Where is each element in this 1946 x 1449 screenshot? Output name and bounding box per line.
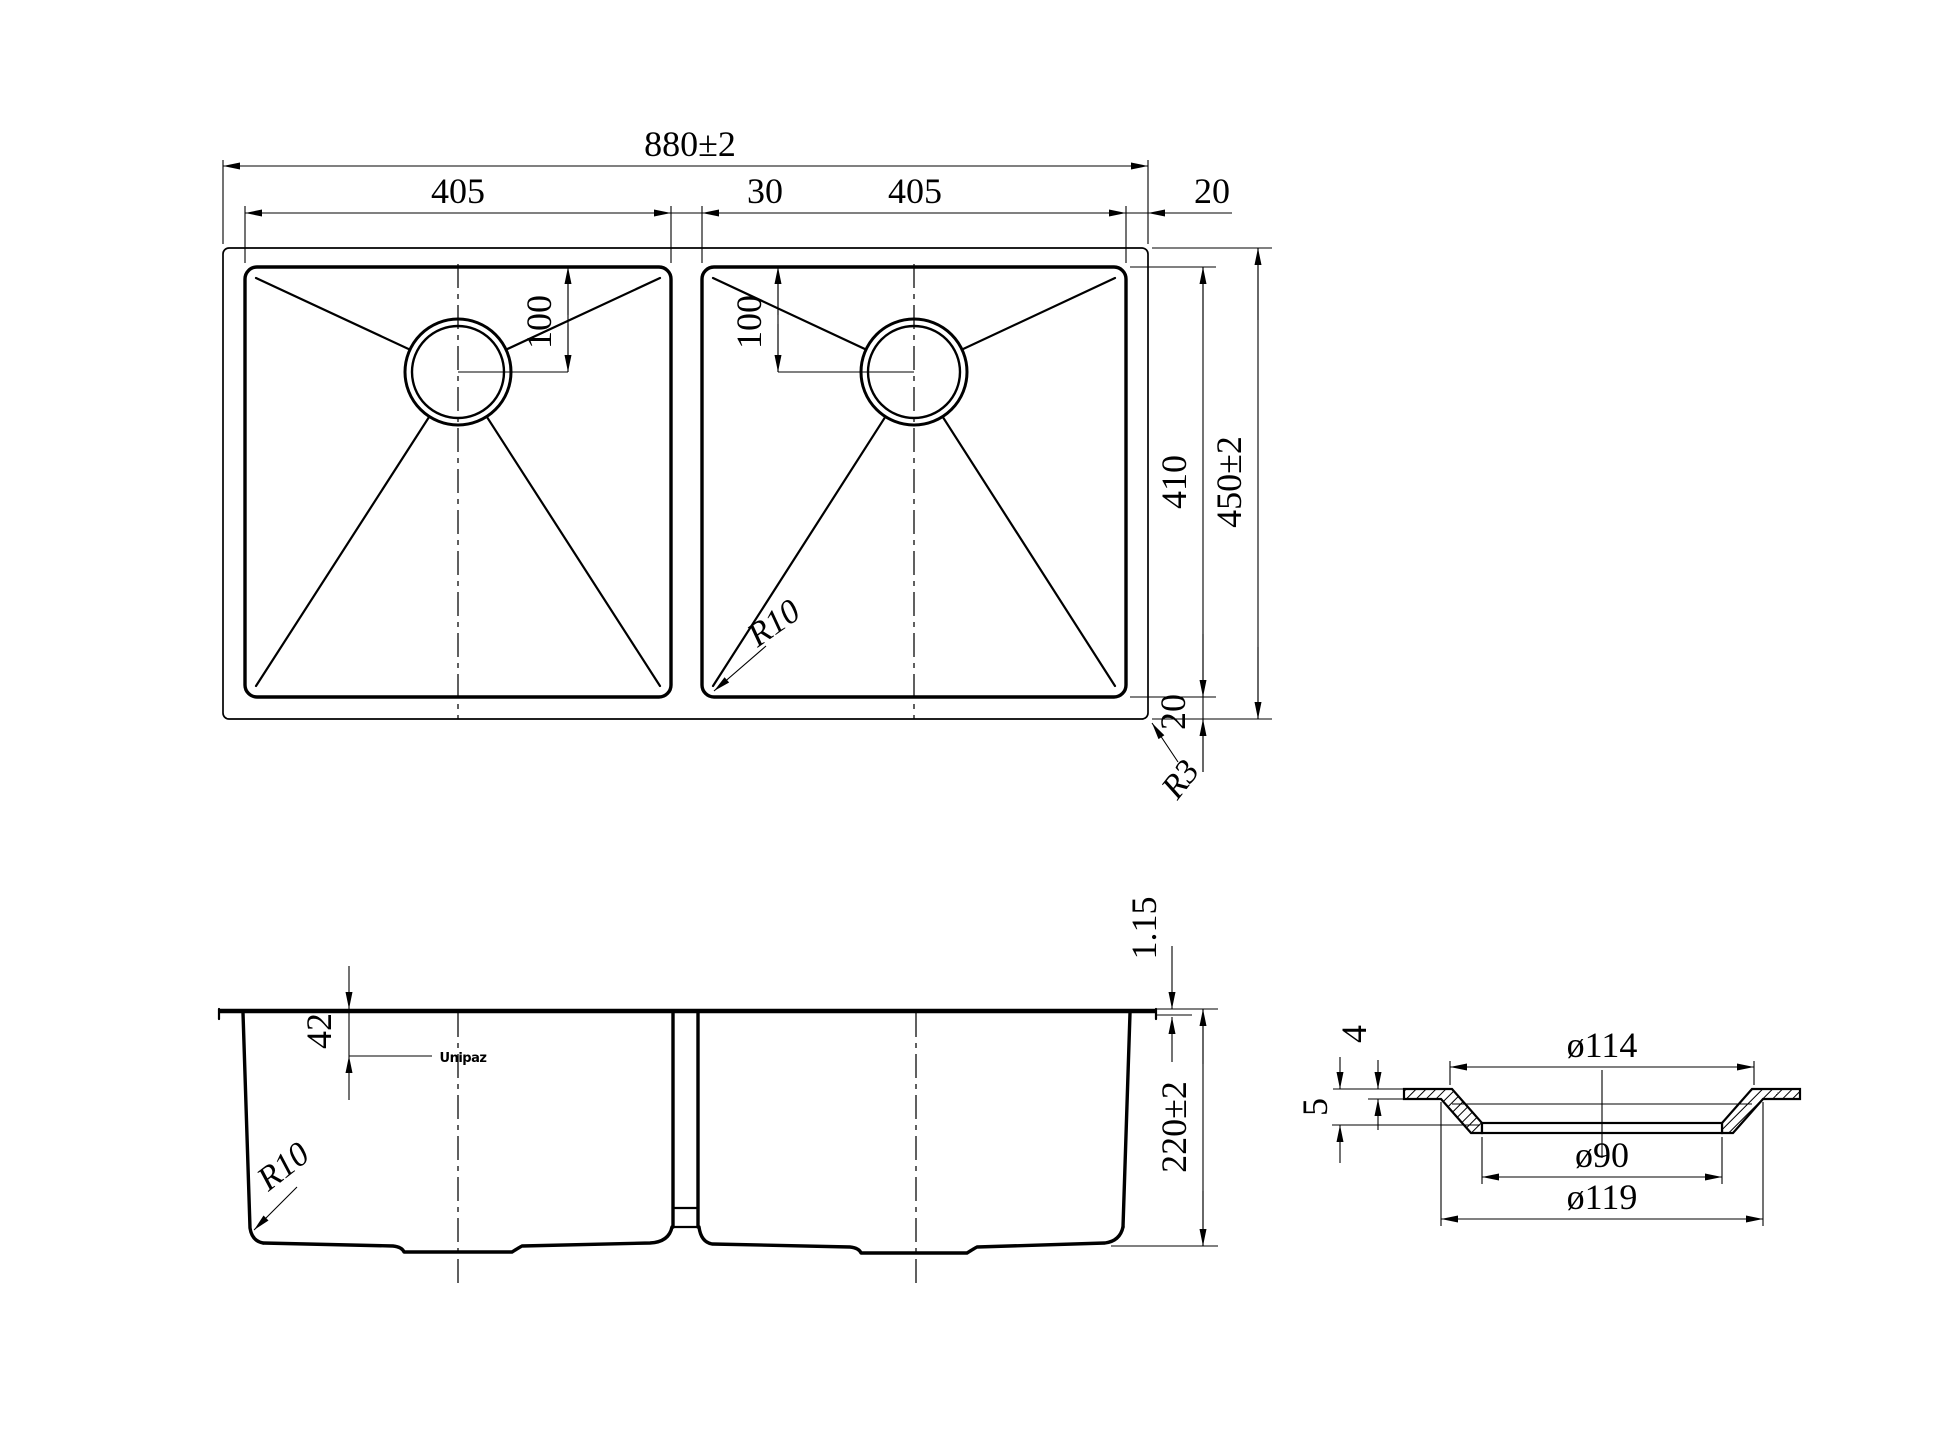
left-wall [243, 1013, 263, 1243]
rim-thickness-label: 1.15 [1124, 897, 1164, 960]
left-drain-offset-label: 100 [519, 295, 559, 349]
logo-offset-label: 42 [299, 1013, 339, 1049]
right-bowl-width-label: 405 [888, 171, 942, 211]
flange-section-right [1722, 1089, 1800, 1133]
dim-left-bowl-width: 405 [245, 171, 671, 213]
dim-outer-corner-radius: R3 [1152, 723, 1207, 807]
dim-overall-width: 880±2 [223, 124, 1148, 166]
plan-view: 880±2 405 30 405 20 [223, 124, 1272, 807]
front-view: 42 Unipaz 1.15 220±2 R10 [218, 897, 1218, 1288]
dim-overall-length: 450±2 [1209, 248, 1258, 719]
right-drain-offset-label: 100 [729, 295, 769, 349]
flange-section-left [1404, 1089, 1482, 1133]
drain-detail: ø114 ø90 ø119 4 [1295, 1025, 1800, 1226]
bowl-corner-radius-label: R10 [740, 593, 807, 655]
dim-divider-width: 30 [671, 171, 783, 213]
left-bowl-width-label: 405 [431, 171, 485, 211]
top-diameter-label: ø114 [1567, 1025, 1638, 1065]
overall-width-label: 880±2 [644, 124, 736, 164]
drawing-sheet: 880±2 405 30 405 20 [0, 0, 1946, 1449]
dim-bowl-corner-radius: R10 [714, 593, 807, 691]
front-corner-radius-label: R10 [250, 1135, 317, 1198]
overall-length-label: 450±2 [1209, 436, 1249, 528]
left-bowl [245, 264, 671, 719]
left-bowl-bottom [263, 1227, 672, 1252]
bowl-length-label: 410 [1154, 455, 1194, 509]
recess-depth-label: 5 [1295, 1098, 1335, 1116]
bottom-edge-label: 20 [1153, 694, 1193, 730]
flange-lip-label: 4 [1334, 1025, 1374, 1043]
overall-height-label: 220±2 [1154, 1081, 1194, 1173]
sink-technical-drawing: 880±2 405 30 405 20 [0, 0, 1946, 1449]
outer-rim-outline [223, 248, 1148, 719]
right-bowl-bottom [699, 1227, 1123, 1253]
dim-right-edge: 20 [1126, 171, 1232, 213]
dim-left-drain-offset: 100 [519, 267, 568, 372]
dim-bowl-length: 410 [1154, 267, 1203, 697]
inner-diameter-label: ø90 [1575, 1135, 1629, 1175]
dim-rim-thickness: 1.15 [1124, 897, 1192, 1063]
outer-diameter-label: ø119 [1567, 1177, 1638, 1217]
outer-corner-radius-label: R3 [1154, 753, 1207, 806]
dim-flange-lip: 4 [1333, 1025, 1404, 1130]
dim-right-drain-offset: 100 [729, 267, 778, 372]
right-wall [1123, 1013, 1130, 1227]
divider-width-label: 30 [747, 171, 783, 211]
brand-logo: Unipaz [440, 1051, 487, 1066]
right-edge-label: 20 [1194, 171, 1230, 211]
dim-front-corner-radius: R10 [250, 1135, 317, 1230]
